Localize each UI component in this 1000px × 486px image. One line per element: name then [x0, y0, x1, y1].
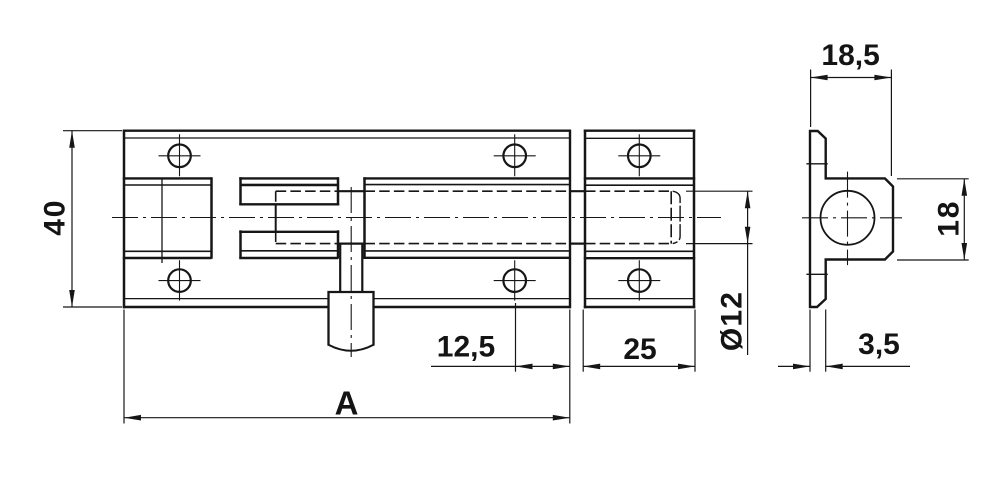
- svg-text:40: 40: [39, 199, 72, 236]
- svg-text:18: 18: [933, 200, 966, 237]
- svg-text:18,5: 18,5: [821, 39, 879, 72]
- svg-text:A: A: [335, 385, 359, 422]
- svg-text:3,5: 3,5: [858, 328, 900, 361]
- svg-text:25: 25: [623, 333, 656, 366]
- svg-text:Ø12: Ø12: [716, 291, 749, 351]
- svg-text:12,5: 12,5: [437, 331, 495, 364]
